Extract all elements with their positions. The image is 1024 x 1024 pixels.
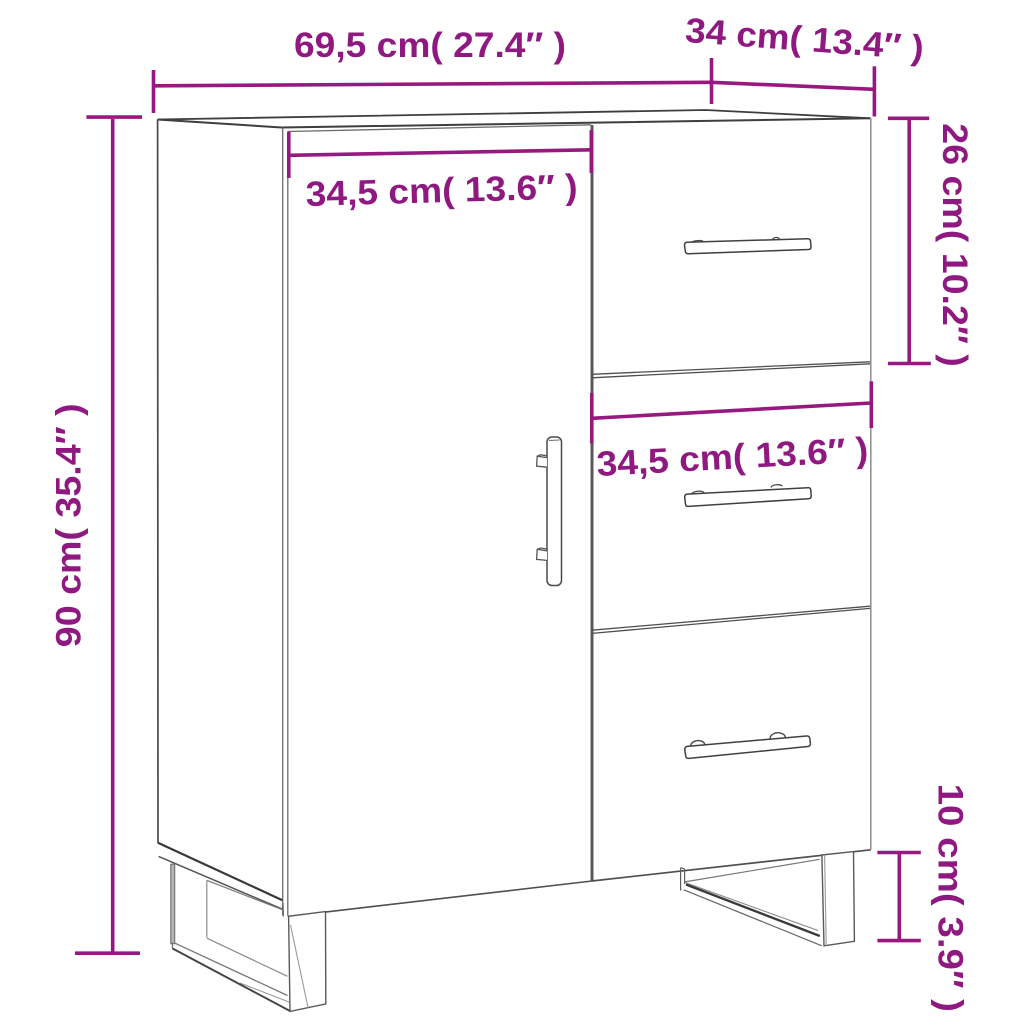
- svg-text:26 cm( 10.2″ ): 26 cm( 10.2″ ): [935, 123, 974, 366]
- svg-text:90 cm( 35.4″ ): 90 cm( 35.4″ ): [50, 403, 89, 647]
- svg-text:10 cm( 3.9″ ): 10 cm( 3.9″ ): [931, 784, 970, 1012]
- svg-text:34,5 cm( 13.6″ ): 34,5 cm( 13.6″ ): [305, 167, 578, 214]
- svg-text:69,5 cm( 27.4″ ): 69,5 cm( 27.4″ ): [294, 26, 566, 65]
